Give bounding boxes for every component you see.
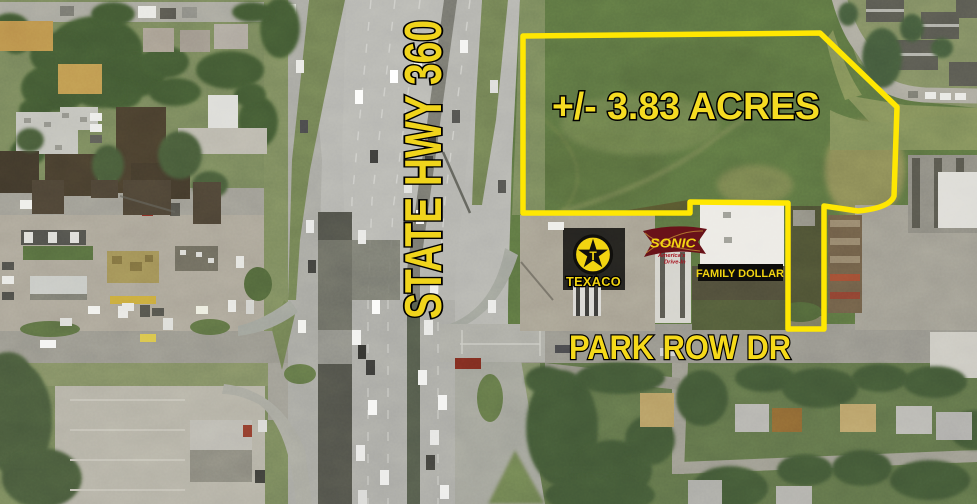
svg-text:Drive-In: Drive-In	[664, 260, 686, 266]
svg-text:FAMILY DOLLAR: FAMILY DOLLAR	[696, 268, 784, 280]
svg-text:+/- 3.83 ACRES: +/- 3.83 ACRES	[552, 86, 820, 128]
svg-text:America's: America's	[657, 253, 686, 259]
svg-text:PARK ROW DR: PARK ROW DR	[569, 329, 791, 367]
svg-text:TEXACO: TEXACO	[566, 274, 621, 289]
svg-text:SONIC: SONIC	[650, 236, 697, 251]
svg-text:T: T	[589, 249, 597, 263]
svg-text:STATE HWY 360: STATE HWY 360	[393, 20, 452, 319]
